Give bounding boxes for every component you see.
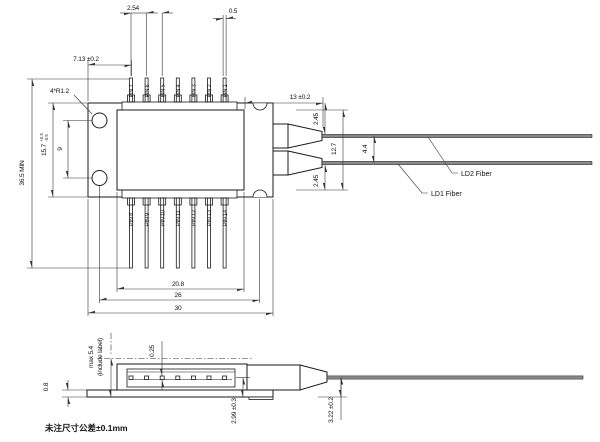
dim-hole-spacing: 9 <box>57 121 92 179</box>
dim-text: 3.22 ±0.2 <box>328 397 335 423</box>
dim-text: 2.45 <box>313 112 320 125</box>
pin-labels-top: PIN 7 PIN 6 PIN 5 PIN 4 PIN 3 PIN 2 PIN … <box>129 84 229 97</box>
pin-label: PIN 9 <box>145 213 151 226</box>
label-ld1-fiber: LD1 Fiber <box>398 164 462 198</box>
dim-base-thickness: 0.8 <box>43 380 87 407</box>
side-view: max 5.4 (include label) 0.8 0.25 2.99 ±0… <box>43 333 583 433</box>
dim-tolerance-minus: -0.5 <box>44 134 49 142</box>
fiber-label: LD1 Fiber <box>431 191 462 198</box>
dim-text: 0.25 <box>149 344 156 357</box>
package-body-side <box>117 364 247 390</box>
dim-text: 2.99 ±0.3 <box>231 398 238 424</box>
pin-label: PIN 8 <box>129 213 135 226</box>
dim-text: 12.7 <box>331 142 338 155</box>
package-lid <box>117 110 244 190</box>
callout-mount-radius: 4*R1.2 <box>50 88 92 114</box>
dim-pkg-height: max 5.4 (include label) <box>88 333 111 397</box>
dim-boot-exit-height: 3.22 ±0.2 <box>318 378 347 423</box>
snout-side <box>247 365 300 390</box>
dim-text: 4*R1.2 <box>50 88 69 95</box>
drawing-canvas: PIN 7 PIN 6 PIN 5 PIN 4 PIN 3 PIN 2 PIN … <box>0 0 600 442</box>
dim-pin-width: 0.5 <box>213 8 238 76</box>
pin-label: PIN 6 <box>145 84 151 97</box>
dim-text: 20.8 <box>172 281 185 288</box>
label-ld2-fiber: LD2 Fiber <box>428 137 492 178</box>
dim-text: 4.4 <box>362 144 369 153</box>
butterfly-package-drawing: PIN 7 PIN 6 PIN 5 PIN 4 PIN 3 PIN 2 PIN … <box>0 0 600 442</box>
fiber-label: LD2 Fiber <box>461 171 492 178</box>
dim-edge-to-pin: 7.13 ±0.2 <box>73 56 131 101</box>
fiber-snout-ld1 <box>273 151 592 175</box>
boot-side <box>300 365 327 390</box>
dim-text: 7.13 ±0.2 <box>73 56 99 63</box>
dim-text: 15.7 <box>41 143 48 156</box>
dim-text: 2.54 <box>127 5 140 12</box>
pin-seal-strip-top <box>122 102 237 110</box>
ld1-fiber <box>322 161 592 164</box>
dim-pin-pitch: 2.54 <box>120 5 173 76</box>
mounting-hole-top <box>92 113 107 128</box>
mounting-hole-bottom <box>92 171 107 186</box>
base-flange-side <box>87 390 273 397</box>
ld2-fiber <box>322 134 592 137</box>
pin-label: PIN 5 <box>160 84 166 97</box>
pin-label: PIN 14 <box>223 210 229 226</box>
fiber-side <box>327 376 583 379</box>
pin-label: PIN 12 <box>192 210 198 226</box>
pin-label: PIN 3 <box>192 84 198 97</box>
dim-text: 9 <box>57 147 64 151</box>
flange-step <box>249 397 273 400</box>
dim-text: 36.5 MIN <box>19 160 26 186</box>
fiber-snout-ld2 <box>273 124 592 148</box>
pin-label: PIN 11 <box>176 210 182 226</box>
pin-label: PIN 1 <box>223 84 229 97</box>
pin-label: PIN 4 <box>176 84 182 97</box>
pins-bottom <box>128 198 229 268</box>
dim-text: 13 ±0.2 <box>290 94 311 101</box>
top-view: PIN 7 PIN 6 PIN 5 PIN 4 PIN 3 PIN 2 PIN … <box>19 5 592 316</box>
pin-labels-bottom: PIN 8 PIN 9 PIN 10 PIN 11 PIN 12 PIN 13 … <box>129 210 229 226</box>
dim-text: (include label) <box>97 338 104 376</box>
dim-text: 2.45 <box>313 174 320 187</box>
dim-text: max 5.4 <box>88 345 95 368</box>
dim-fiber-offsets: 2.45 2.45 12.7 4.4 <box>296 103 374 190</box>
pin-seal-strip-bottom <box>122 190 237 198</box>
pin-label: PIN 7 <box>129 84 135 97</box>
dim-text: 0.5 <box>229 8 238 15</box>
dim-text: 26 <box>175 292 182 299</box>
pin-label: PIN 13 <box>207 210 213 226</box>
tolerance-note: 未注尺寸公差±0.1mm <box>44 423 128 433</box>
dim-text: 0.8 <box>43 382 50 391</box>
pin-label: PIN 10 <box>160 210 166 226</box>
dim-text: 30 <box>175 305 182 312</box>
pin-label: PIN 2 <box>207 84 213 97</box>
